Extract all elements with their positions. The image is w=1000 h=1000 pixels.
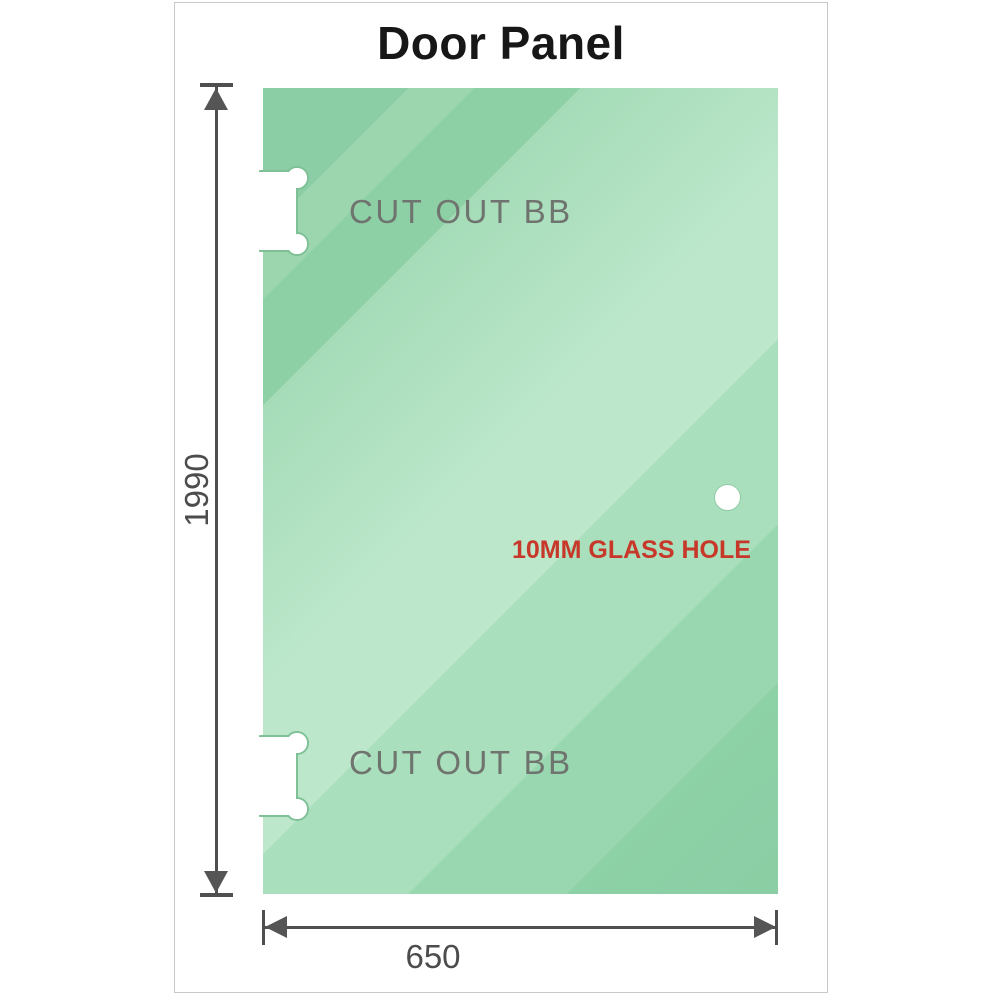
hinge-cutout-bottom (259, 730, 309, 822)
width-dimension-line (265, 926, 776, 929)
arrow-left-icon (265, 916, 287, 938)
cutout-label-bottom: CUT OUT BB (349, 746, 609, 780)
height-dimension-cap-bottom (200, 893, 233, 897)
arrow-down-icon (204, 871, 228, 893)
width-dimension-label: 650 (393, 938, 473, 976)
hinge-cutout-top (259, 165, 309, 257)
glass-hole (714, 484, 741, 511)
height-dimension-line (215, 87, 218, 893)
width-dimension-cap-right (775, 910, 778, 945)
page-title: Door Panel (174, 16, 828, 70)
arrow-up-icon (204, 88, 228, 110)
glass-hole-label: 10MM GLASS HOLE (512, 536, 722, 565)
arrow-right-icon (754, 916, 776, 938)
cutout-label-top: CUT OUT BB (349, 195, 609, 229)
height-dimension-label: 1990 (180, 450, 214, 530)
